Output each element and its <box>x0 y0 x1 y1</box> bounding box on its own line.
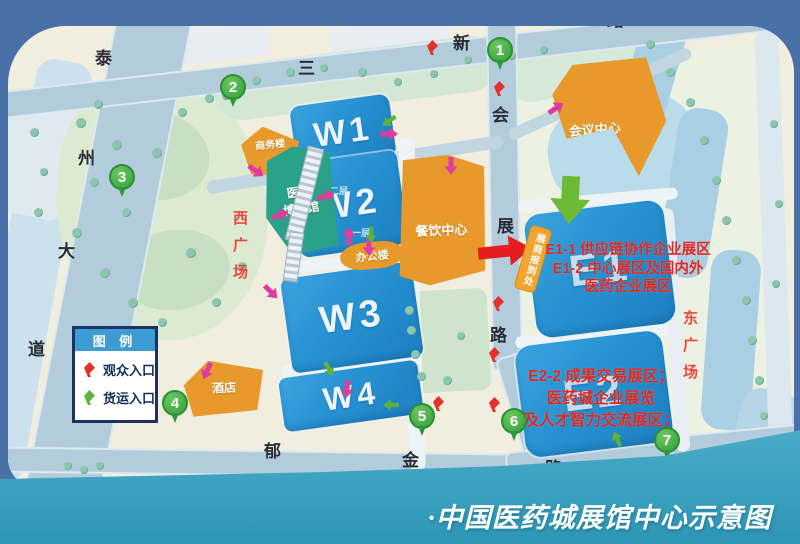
tree <box>320 64 328 72</box>
tree <box>646 40 655 49</box>
tree <box>742 296 751 305</box>
legend-visitor-label: 观众入口 <box>103 360 155 379</box>
road-label-top-2: 路 <box>607 26 624 29</box>
tree <box>128 298 138 308</box>
gate-marker-5: 5 <box>409 403 435 429</box>
road-label-left_vertical-3: 道 <box>28 341 45 358</box>
e1-annotation-line1: E1-1 供应链协作企业展区 <box>537 241 719 260</box>
tree <box>666 68 675 77</box>
tree <box>30 128 39 137</box>
tree <box>72 228 82 238</box>
e2-annotation: E2-2 成果交易展区； 医药城企业展览 及人才智力交流展区； <box>503 366 699 432</box>
legend-title: 图 例 <box>75 329 155 351</box>
tree <box>100 268 110 278</box>
tree <box>158 318 167 327</box>
tree <box>443 376 452 385</box>
tree <box>722 216 731 225</box>
tree <box>358 68 367 77</box>
building-hotel: 酒店 <box>183 358 266 417</box>
tree <box>760 412 768 420</box>
tree <box>411 350 420 359</box>
road-label-center_vertical-2: 路 <box>490 327 507 344</box>
road-label-bottom-0: 郁 <box>264 443 281 460</box>
building-business-label: 商务楼 <box>254 135 285 153</box>
legend-row-visitor: 观众入口 <box>84 360 155 379</box>
hall-w3-label: W3 <box>317 292 387 344</box>
building-dining: 餐饮中心 <box>394 153 488 286</box>
tree <box>770 120 778 128</box>
legend-freight-label: 货运入口 <box>103 388 155 407</box>
tree <box>112 140 122 150</box>
road-label-bottom-1: 金 <box>402 452 419 469</box>
tree <box>40 168 48 176</box>
e1-annotation-line3: 医药企业展区 <box>537 278 719 297</box>
hall-w4-label: W4 <box>321 374 382 418</box>
hall-w3: W3 <box>280 261 424 373</box>
entrance-arrow-icon <box>260 281 283 304</box>
tree <box>178 108 187 117</box>
tree <box>457 332 465 340</box>
tree <box>712 176 721 185</box>
tree <box>252 76 261 85</box>
tree <box>212 298 221 307</box>
page-title: ·中国医药城展馆中心示意图 <box>428 496 772 535</box>
tree <box>748 336 757 345</box>
tree <box>96 462 104 470</box>
road-label-left_vertical-2: 大 <box>58 243 75 260</box>
tree <box>417 372 426 381</box>
tree <box>732 256 741 265</box>
road-center <box>486 26 523 371</box>
west-plaza-label: 西广场 <box>229 210 250 291</box>
road-label-center_vertical-1: 展 <box>497 218 514 235</box>
map-layer: W1 W2 W3 W4 E1 E2 商务楼 医药 <box>8 26 794 488</box>
road-label-left_vertical-0: 泰 <box>95 50 112 67</box>
tree <box>540 46 548 54</box>
building-dining-label: 餐饮中心 <box>415 219 468 240</box>
tree <box>286 68 295 77</box>
road-label-center_vertical-0: 会 <box>492 107 509 124</box>
legend-row-freight: 货运入口 <box>84 388 155 407</box>
visitor-entrance-icon <box>84 362 95 377</box>
tree <box>152 148 162 158</box>
tree <box>686 98 695 107</box>
tree <box>755 376 764 385</box>
freight-entrance-icon <box>84 390 95 405</box>
gate-marker-6: 6 <box>501 408 527 434</box>
tree <box>94 100 103 109</box>
e2-annotation-line2: 医药城企业展览 <box>503 388 699 410</box>
gate-marker-4: 4 <box>162 390 188 416</box>
tree <box>122 208 131 217</box>
tree <box>205 94 214 103</box>
tree <box>464 56 472 64</box>
tree <box>407 326 416 335</box>
tree <box>90 178 99 187</box>
gate-marker-3: 3 <box>109 164 135 190</box>
tree <box>80 466 88 474</box>
tree <box>772 280 780 288</box>
tree <box>405 306 414 315</box>
map: W1 W2 W3 W4 E1 E2 商务楼 医药 <box>8 26 794 488</box>
tree <box>430 70 438 78</box>
gate-marker-1: 1 <box>487 37 513 63</box>
e2-annotation-line1: E2-2 成果交易展区； <box>503 366 699 388</box>
gate-marker-7: 7 <box>654 427 680 453</box>
tree <box>700 136 709 145</box>
visitor-entrance-icon <box>489 397 500 412</box>
e1-annotation: E1-1 供应链协作企业展区 E1-2 中心展区及国内外 医药企业展区 <box>537 241 719 297</box>
tree <box>76 118 86 128</box>
tree <box>64 462 72 470</box>
road-label-top-0: 三 <box>298 60 315 77</box>
tree <box>34 208 43 217</box>
visitor-entrance-icon <box>433 396 444 411</box>
building-hotel-label: 酒店 <box>212 378 237 396</box>
road-label-left_vertical-1: 州 <box>78 150 95 167</box>
site-map-screenshot: W1 W2 W3 W4 E1 E2 商务楼 医药 <box>0 0 800 544</box>
e1-annotation-line2: E1-2 中心展区及国内外 <box>537 260 719 279</box>
legend: 图 例 观众入口 货运入口 <box>72 326 158 423</box>
road-label-top-1: 新 <box>453 35 470 52</box>
tree <box>775 200 783 208</box>
tree <box>394 78 402 86</box>
gate-marker-2: 2 <box>220 74 246 100</box>
tree <box>186 248 196 258</box>
